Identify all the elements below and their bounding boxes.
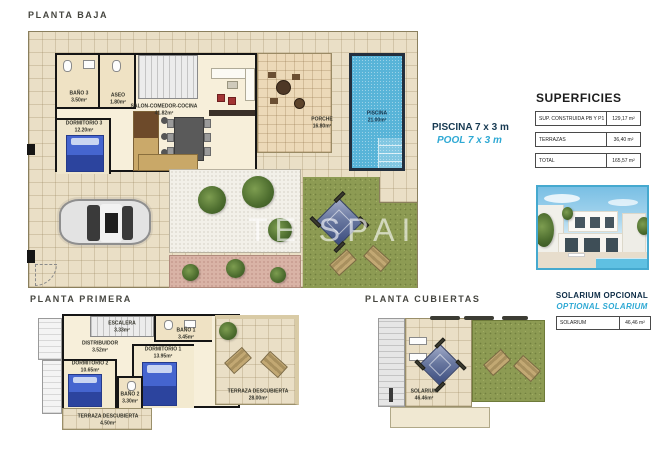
sun-lounger [513, 355, 541, 382]
patio-chair [292, 74, 300, 80]
roof-lawn [472, 320, 545, 402]
photo-villa-upper [568, 211, 618, 232]
paving-notch [379, 177, 417, 203]
room-label-porche: PORCHE16.80m² [311, 117, 332, 130]
superficies-row-label: TERRAZAS [536, 133, 606, 146]
tree-icon [242, 176, 274, 208]
sofa [245, 68, 255, 101]
patio-chair [270, 98, 278, 104]
superficies-row-value: 165,57 m² [606, 154, 640, 167]
plant-icon [270, 267, 286, 283]
superficies-row-value: 129,17 m² [606, 112, 640, 125]
room-label-terraza-grande: TERRAZA DESCUBIERTA28.00m² [228, 389, 289, 402]
villa-photo [536, 185, 649, 270]
room-label-bano1: BAÑO 13.45m² [177, 328, 196, 341]
superficies-row: SUP. CONSTRUIDA PB Y P1 129,17 m² [535, 111, 641, 126]
room-label-bano2: BAÑO 23.30m² [121, 392, 140, 405]
superficies-title: SUPERFICIES [536, 91, 622, 105]
lower-roof [390, 407, 490, 428]
superficies-row-label: SUP. CONSTRUIDA PB Y P1 [536, 112, 606, 125]
bed [68, 374, 102, 407]
sun-lounger [329, 249, 357, 276]
tv-console [209, 110, 255, 116]
entrance-door-swing [35, 264, 57, 286]
stair-hatch [38, 318, 62, 360]
gravel-garden-pink [169, 255, 301, 288]
room-label-salon: SALON-COMEDOR-COCINA41.82m² [131, 104, 198, 117]
gate-pillar [27, 144, 35, 155]
planter-bar [464, 316, 494, 320]
bed [66, 135, 104, 172]
plant-icon [219, 322, 237, 340]
car-sunroof [105, 213, 118, 233]
chair [167, 133, 174, 142]
armchair [228, 97, 236, 105]
solarium-deck: SOLARIUM46.46m² [405, 318, 472, 407]
room-label-solarium: SOLARIUM46.46m² [411, 389, 438, 402]
room-label-bano3: BAÑO 33.50m² [70, 91, 89, 104]
planta-baja-title: PLANTA BAJA [28, 10, 108, 20]
floorplan-sheet: PLANTA BAJA BAÑO 33.50m² ASEO1.80m² [0, 0, 660, 467]
room-label-dormitorio2: DORMITORIO 210.65m² [72, 361, 109, 374]
planter-bar [502, 316, 528, 320]
plant-icon [226, 259, 245, 278]
chair [204, 119, 211, 128]
photo-pool [596, 258, 649, 270]
cloud [608, 199, 638, 206]
gate-pillar [27, 250, 35, 263]
superficies-row-label: TOTAL [536, 154, 606, 167]
first-floor-house: ESCALERA3.33m² BAÑO 13.45m² DISTRIBUIDOR… [62, 314, 240, 408]
toilet-icon [127, 381, 136, 391]
photo-tree [637, 217, 649, 235]
planter-bar [430, 316, 460, 320]
stair-hatch [42, 360, 62, 414]
patio-chair [268, 72, 276, 78]
roof-stairs [378, 318, 405, 407]
room-label-dormitorio1: DORMITORIO 113.95m² [145, 347, 182, 360]
planta-primera-plan: ESCALERA3.33m² BAÑO 13.45m² DISTRIBUIDOR… [38, 312, 300, 434]
chair [167, 119, 174, 128]
solarium-row-label: SOLARIUM [557, 317, 619, 329]
pyramid-skylight [419, 344, 461, 386]
patio-table [294, 98, 305, 109]
planta-cubiertas-plan: SOLARIUM46.46m² [378, 316, 546, 432]
room-label-dormitorio3: DORMITORIO 312.20m² [66, 121, 103, 134]
sun-lounger [224, 347, 252, 374]
superficies-row-value: 36,40 m² [606, 133, 640, 146]
car-rear-window [122, 206, 133, 240]
photo-tree [562, 207, 573, 220]
sink-icon [83, 60, 95, 69]
room-label-aseo: ASEO1.80m² [110, 93, 126, 106]
bed [142, 362, 177, 406]
terraza-descubierta-pequena: TERRAZA DESCUBIERTA4.50m² [62, 408, 152, 430]
solarium-opcional-title-en: OPTIONAL SOLARIUM [552, 302, 652, 311]
chair [204, 147, 211, 156]
planter [409, 337, 427, 345]
solarium-table-row: SOLARIUM 46,46 m² [556, 316, 651, 330]
photo-lounger [568, 253, 585, 257]
superficies-row: TOTAL 165,57 m² [535, 153, 641, 168]
toilet-icon [164, 320, 173, 330]
pool-note-en: POOL 7 x 3 m [437, 135, 502, 146]
room-label-terraza-pequena: TERRAZA DESCUBIERTA4.50m² [78, 414, 139, 427]
terraza-descubierta-grande: TERRAZA DESCUBIERTA28.00m² [215, 315, 299, 405]
car-windshield [87, 205, 100, 241]
car-top-view [59, 199, 151, 245]
room-label-escalera: ESCALERA3.33m² [108, 321, 136, 334]
ground-floor-house: BAÑO 33.50m² ASEO1.80m² SALON-COMEDOR-CO… [55, 53, 257, 172]
pool-note-es: PISCINA 7 x 3 m [432, 122, 509, 133]
solarium-opcional-title-es: SOLARIUM OPCIONAL [552, 291, 652, 300]
sun-lounger [483, 349, 511, 376]
pool-steps [378, 138, 402, 168]
porche-area [257, 53, 332, 153]
stair-arrow-icon [389, 388, 393, 402]
toilet-icon [63, 60, 72, 72]
coffee-table [227, 81, 238, 89]
solarium-row-value: 46,46 m² [619, 317, 650, 329]
toilet-icon [112, 60, 121, 72]
patio-table [276, 80, 291, 95]
cloud [544, 194, 580, 203]
planta-primera-title: PLANTA PRIMERA [30, 294, 132, 304]
planta-cubiertas-title: PLANTA CUBIERTAS [365, 294, 480, 304]
armchair [217, 94, 225, 102]
room-label-piscina: PISCINA21.00m² [367, 111, 387, 124]
watermark: TE SPAIN - [248, 212, 481, 249]
sun-lounger [260, 351, 288, 378]
stairs [138, 55, 198, 99]
plant-icon [182, 264, 199, 281]
chair [204, 133, 211, 142]
planta-baja-plan: BAÑO 33.50m² ASEO1.80m² SALON-COMEDOR-CO… [28, 31, 418, 288]
room-label-distribuidor: DISTRIBUIDOR3.52m² [82, 341, 118, 354]
superficies-row: TERRAZAS 36,40 m² [535, 132, 641, 147]
tree-icon [198, 186, 226, 214]
